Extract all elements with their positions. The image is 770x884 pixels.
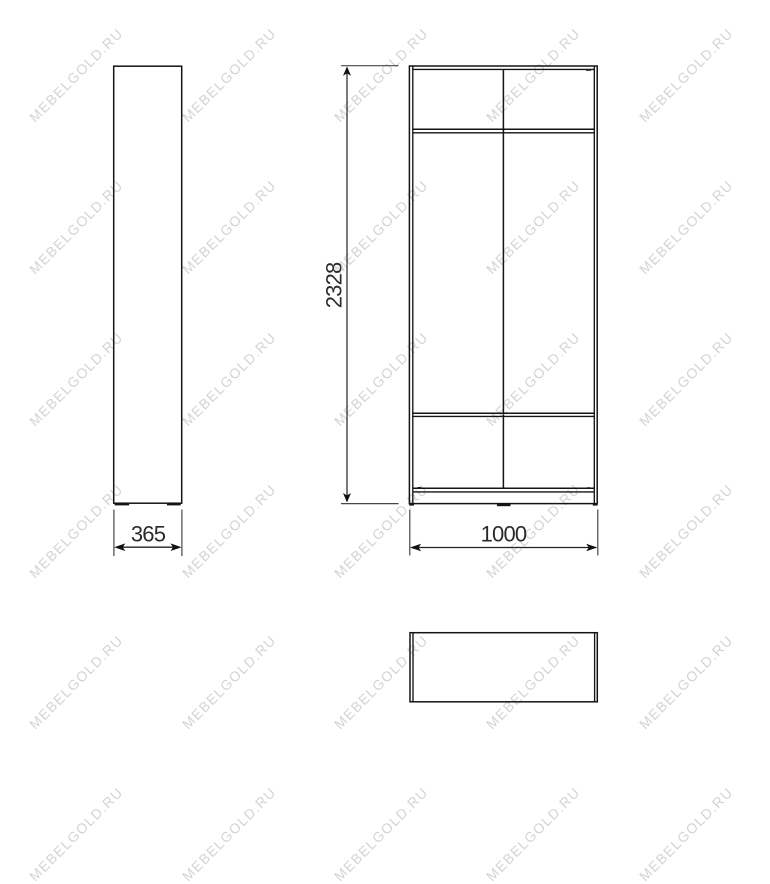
svg-text:365: 365 bbox=[131, 521, 166, 546]
svg-text:1000: 1000 bbox=[481, 522, 527, 547]
svg-text:2328: 2328 bbox=[321, 262, 346, 308]
